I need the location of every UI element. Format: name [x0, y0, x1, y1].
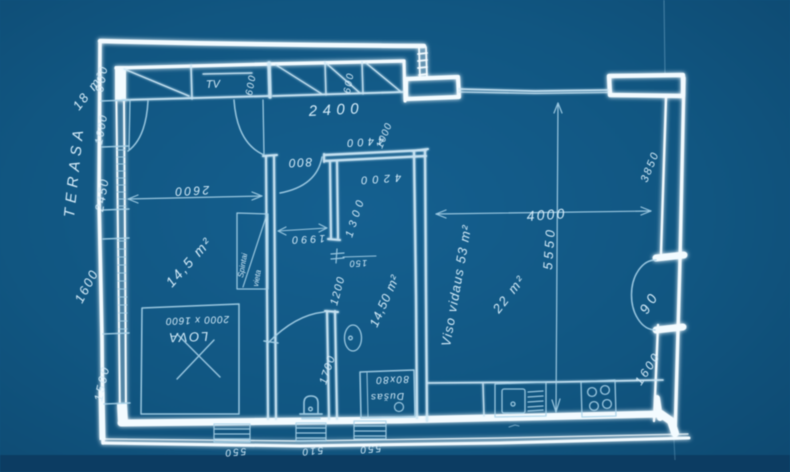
- svg-text:550: 550: [223, 445, 247, 458]
- svg-text:2400: 2400: [307, 100, 364, 120]
- svg-text:800: 800: [287, 155, 313, 170]
- svg-text:2000 x 1600: 2000 x 1600: [165, 313, 230, 326]
- svg-text:510: 510: [300, 444, 324, 457]
- svg-text:550: 550: [358, 442, 382, 455]
- svg-text:TV: TV: [206, 78, 222, 91]
- svg-text:LOVA: LOVA: [168, 329, 209, 345]
- svg-text:4000: 4000: [526, 205, 567, 224]
- svg-text:1990: 1990: [289, 232, 326, 246]
- svg-text:150: 150: [348, 258, 367, 269]
- svg-text:Dušas: Dušas: [370, 390, 405, 402]
- svg-text:5550: 5550: [540, 226, 558, 270]
- svg-text:80x80: 80x80: [375, 373, 410, 385]
- svg-text:2600: 2600: [173, 183, 211, 199]
